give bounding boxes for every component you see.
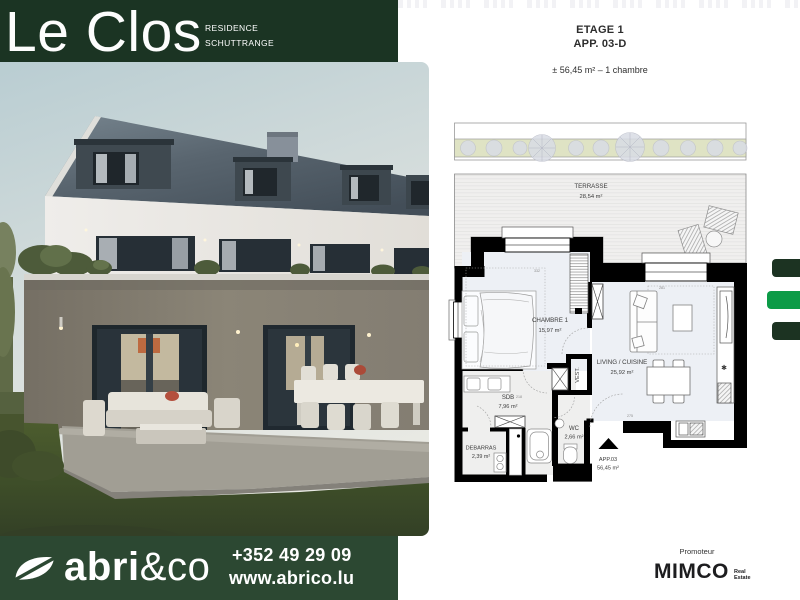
svg-text:TERRASSE: TERRASSE [574, 183, 607, 190]
svg-text:2,66 m²: 2,66 m² [565, 435, 584, 441]
svg-text:✱: ✱ [721, 364, 727, 372]
svg-text:15,97 m²: 15,97 m² [539, 328, 562, 334]
svg-text:281: 281 [659, 286, 665, 290]
svg-text:275: 275 [627, 414, 633, 418]
svg-text:56,45 m²: 56,45 m² [597, 466, 619, 472]
svg-text:DEBARRAS: DEBARRAS [466, 446, 497, 452]
svg-text:WC: WC [569, 426, 580, 432]
svg-text:2,39 m²: 2,39 m² [472, 454, 490, 460]
svg-text:APP.03: APP.03 [599, 457, 617, 463]
svg-text:218: 218 [516, 395, 522, 399]
svg-text:SDB: SDB [502, 395, 514, 401]
svg-text:VEST.: VEST. [575, 367, 581, 383]
svg-text:CHAMBRE 1: CHAMBRE 1 [532, 317, 569, 324]
svg-text:28,54 m²: 28,54 m² [580, 194, 603, 200]
svg-text:332: 332 [534, 269, 540, 273]
svg-text:7,96 m²: 7,96 m² [499, 404, 518, 410]
svg-text:LIVING / CUISINE: LIVING / CUISINE [597, 359, 648, 366]
svg-text:25,92 m²: 25,92 m² [611, 370, 634, 376]
